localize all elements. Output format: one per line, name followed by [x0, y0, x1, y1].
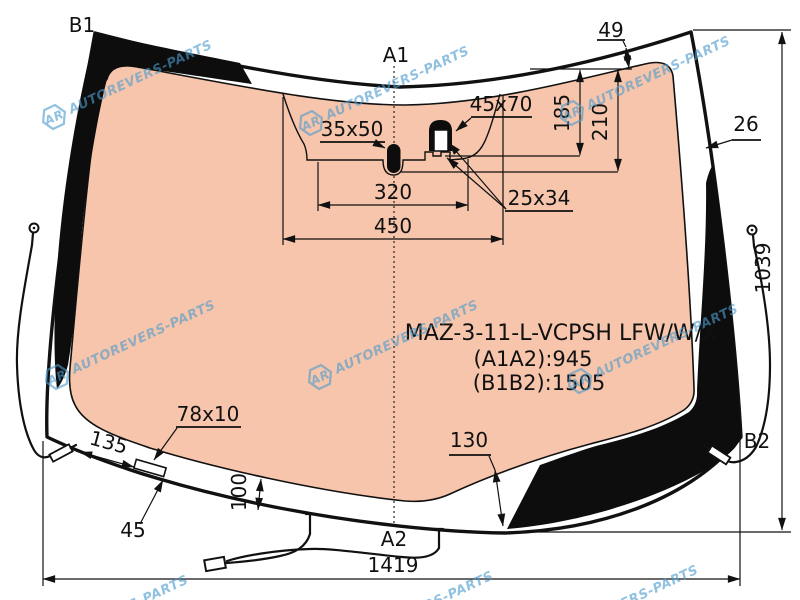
dim-label-450: 450: [374, 214, 412, 238]
watermark: AR AUTOREVERS-PARTS: [15, 569, 192, 600]
antenna-terminal-left-stem: [32, 233, 33, 245]
dim-label-78x10: 78x10: [177, 402, 240, 426]
corner-label-b1: B1: [69, 13, 95, 37]
dim-label-45x70: 45x70: [470, 92, 533, 116]
corner-label-a2: A2: [381, 527, 407, 551]
dim-label-49: 49: [598, 18, 623, 42]
dim-label-1419: 1419: [368, 553, 419, 577]
bottom-connector: [204, 557, 226, 571]
part-dim-a1a2: (A1A2):945: [474, 347, 593, 371]
edge-connector-left-body: [49, 444, 72, 461]
dim-label-130: 130: [450, 428, 488, 452]
watermark-text: AUTOREVERS-PARTS: [42, 573, 191, 600]
rain-sensor-window: [434, 130, 448, 151]
watermark-text: AUTOREVERS-PARTS: [552, 563, 701, 600]
diagram-svg: B1 A1 B2 A2 49 26 185 210 320 450 35x50: [0, 0, 800, 600]
mirror-mount: [387, 144, 401, 173]
windshield-diagram: B1 A1 B2 A2 49 26 185 210 320 450 35x50: [0, 0, 800, 600]
dim-45-leader: [140, 480, 163, 524]
dim-label-320: 320: [374, 180, 412, 204]
antenna-terminal-right-dot: [751, 229, 754, 232]
antenna-wire-left: [17, 245, 50, 457]
dim-label-25x34: 25x34: [508, 186, 571, 210]
antenna-terminal-left-dot: [33, 227, 36, 230]
dim-label-26: 26: [733, 112, 758, 136]
bottom-connector-body: [204, 557, 226, 571]
corner-label-a1: A1: [383, 43, 409, 67]
dim-label-1039: 1039: [751, 243, 775, 294]
corner-label-b2: B2: [744, 429, 770, 453]
dim-label-100: 100: [227, 473, 251, 511]
dim-49-leader: [623, 41, 626, 47]
watermark: AR AUTOREVERS-PARTS: [525, 559, 702, 600]
